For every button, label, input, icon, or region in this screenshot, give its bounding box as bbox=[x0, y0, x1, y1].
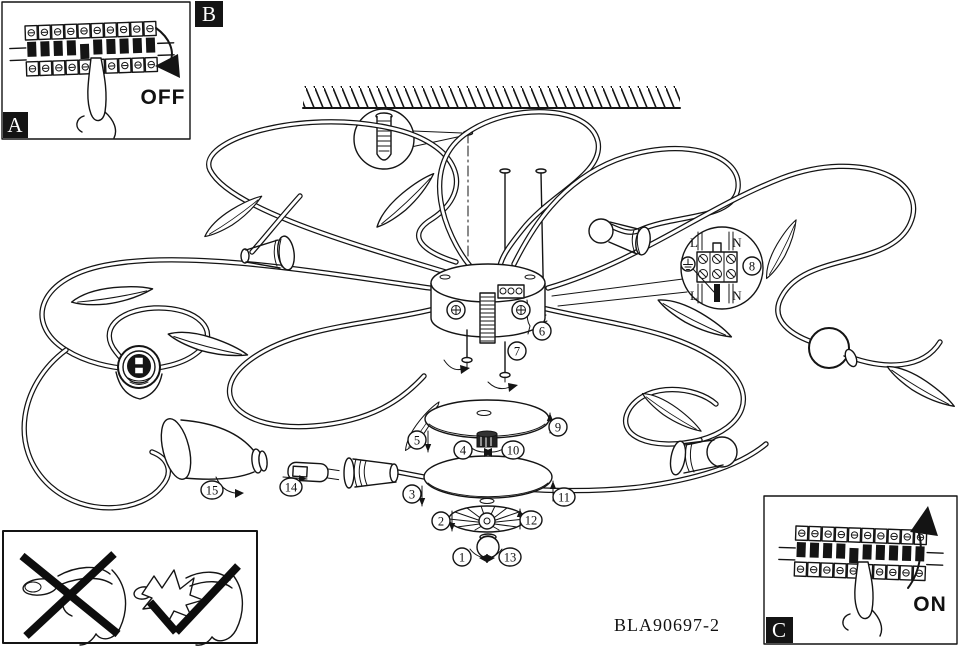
off-label: OFF bbox=[141, 86, 186, 109]
callout-number: 11 bbox=[558, 491, 570, 505]
terminal-label-l-bottom: L bbox=[690, 288, 698, 303]
ball-socket-right bbox=[809, 328, 859, 368]
leaf-ornament-icon bbox=[201, 190, 265, 242]
leaf-ornament-icon bbox=[70, 281, 153, 310]
ceiling-surface bbox=[303, 86, 680, 108]
glass-shade-loose bbox=[156, 416, 268, 482]
socket-front-left bbox=[116, 346, 162, 399]
on-label: ON bbox=[913, 593, 947, 616]
shade-top-right bbox=[589, 219, 652, 256]
section-label-a: A bbox=[7, 113, 23, 137]
callout-number: 13 bbox=[504, 551, 517, 565]
callout-10: 10 bbox=[502, 441, 524, 459]
callout-12: 12 bbox=[520, 511, 542, 529]
earth-wire bbox=[714, 284, 720, 302]
ceiling-canopy bbox=[431, 264, 545, 343]
glass-dish-stack bbox=[424, 400, 552, 558]
panel-a: OFF A bbox=[2, 2, 190, 139]
ceiling-hatch bbox=[303, 86, 680, 108]
canopy-terminal-block bbox=[498, 285, 524, 298]
callout-5: 5 bbox=[408, 431, 426, 449]
svg-text:B: B bbox=[202, 2, 216, 26]
instruction-sheet: L N L N 123456789101112131415 BLA90697-2… bbox=[0, 0, 960, 647]
terminal-label-n-top: N bbox=[732, 235, 742, 250]
assembly-diagram: L N L N 123456789101112131415 BLA90697-2… bbox=[0, 0, 960, 647]
callout-number: 2 bbox=[438, 515, 444, 529]
shade-lower-right bbox=[668, 437, 737, 476]
callout-number: 8 bbox=[749, 260, 755, 274]
glass-dish-lower bbox=[424, 456, 552, 498]
callout-14: 14 bbox=[280, 478, 302, 496]
rotate-arrow-icon bbox=[444, 360, 462, 370]
lamp-arm bbox=[230, 306, 446, 427]
callout-1: 1 bbox=[453, 548, 471, 566]
panel-c: ON C bbox=[764, 496, 957, 644]
callout-3: 3 bbox=[403, 485, 421, 503]
wall-plug-icon bbox=[377, 116, 391, 160]
leaf-ornament-icon bbox=[761, 217, 801, 281]
bulb-handling-panel bbox=[3, 531, 257, 645]
callout-7: 7 bbox=[508, 342, 526, 360]
section-label-c: C bbox=[772, 618, 786, 642]
callout-4: 4 bbox=[454, 441, 472, 459]
callout-number: 3 bbox=[409, 488, 415, 502]
callout-11: 11 bbox=[553, 488, 575, 506]
callout-number: 7 bbox=[514, 345, 520, 359]
terminal-block-icon bbox=[697, 252, 737, 282]
callout-8: 8 bbox=[743, 257, 761, 275]
callout-number: 15 bbox=[206, 484, 219, 498]
knurled-nut-icon bbox=[477, 431, 497, 447]
earth-ground-icon bbox=[681, 257, 695, 271]
callout-number: 5 bbox=[414, 434, 420, 448]
rotate-arrow-icon bbox=[488, 382, 510, 389]
callout-2: 2 bbox=[432, 512, 450, 530]
callout-6: 6 bbox=[533, 322, 551, 340]
callout-number: 12 bbox=[525, 514, 538, 528]
callout-number: 14 bbox=[285, 481, 298, 495]
callout-15: 15 bbox=[201, 481, 223, 499]
callout-9: 9 bbox=[549, 418, 567, 436]
socket-arm-part bbox=[344, 458, 398, 488]
fluted-finial-icon bbox=[449, 506, 525, 532]
callout-number: 4 bbox=[460, 444, 467, 458]
callout-number: 1 bbox=[459, 551, 465, 565]
section-label-b: B bbox=[195, 1, 223, 27]
callout-number: 9 bbox=[555, 421, 561, 435]
callout-number: 10 bbox=[507, 444, 520, 458]
callout-number: 6 bbox=[539, 325, 545, 339]
callout-13: 13 bbox=[499, 548, 521, 566]
terminal-label-n-bottom: N bbox=[732, 288, 742, 303]
model-number: BLA90697-2 bbox=[614, 615, 720, 635]
leaf-ornament-icon bbox=[883, 360, 958, 412]
terminal-label-l-top: L bbox=[690, 235, 698, 250]
